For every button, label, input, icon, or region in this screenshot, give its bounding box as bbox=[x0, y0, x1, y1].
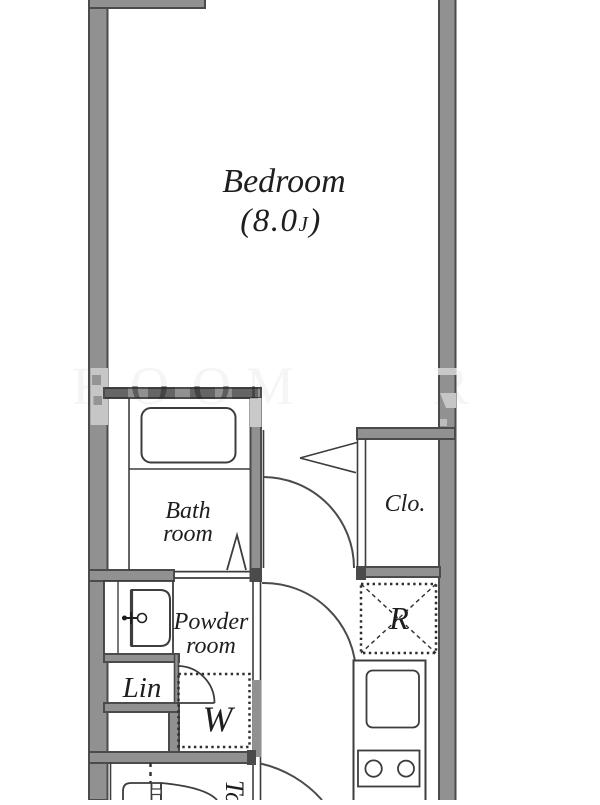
svg-text:Lin: Lin bbox=[122, 672, 162, 704]
svg-text:Powder: Powder bbox=[173, 609, 249, 635]
svg-text:room: room bbox=[186, 633, 236, 659]
svg-text:R: R bbox=[388, 600, 409, 636]
svg-text:Toilet: Toilet bbox=[220, 780, 249, 800]
svg-text:(8.0J): (8.0J) bbox=[240, 203, 322, 239]
svg-text:room: room bbox=[163, 521, 213, 547]
svg-text:Clo.: Clo. bbox=[385, 491, 426, 517]
svg-text:W: W bbox=[203, 699, 236, 739]
svg-text:Bedroom: Bedroom bbox=[222, 163, 345, 200]
